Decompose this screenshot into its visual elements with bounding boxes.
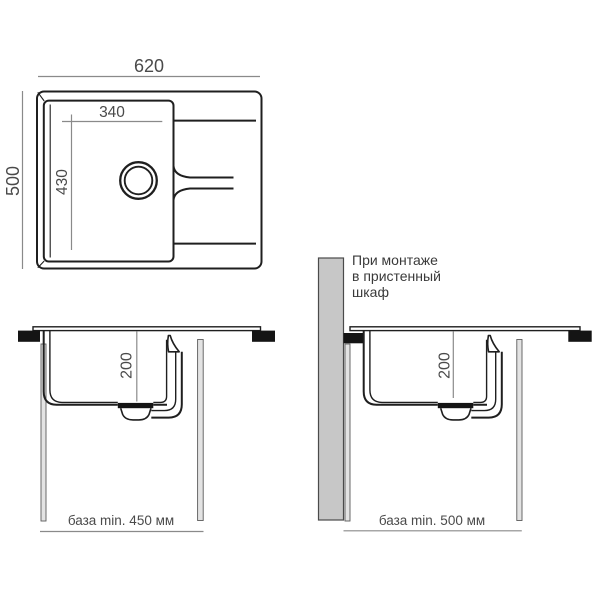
wall-panel: [319, 258, 344, 520]
cabinet-panel-left: [345, 344, 350, 521]
countertop: [33, 327, 261, 331]
top-view: [23, 77, 262, 270]
wall-cabinet-note: При монтаже в пристенный шкаф: [352, 253, 462, 300]
note-line-2: в пристенный: [352, 269, 462, 285]
front-view-standard: [18, 327, 275, 532]
mounting-clamp-left: [344, 333, 364, 343]
diagram-drawing: [0, 0, 600, 600]
note-line-1: При монтаже: [352, 253, 462, 269]
mounting-clamp-right: [252, 331, 275, 342]
mounting-clamp-left: [18, 331, 40, 342]
countertop: [350, 327, 580, 331]
mounting-clamp-right: [568, 331, 591, 342]
sink-installation-diagram: 620 500 340 430 200 200 база min. 450 мм…: [0, 0, 600, 600]
cabinet-panel-right: [517, 340, 522, 521]
cabinet-panel-right: [198, 340, 204, 521]
note-line-3: шкаф: [352, 285, 462, 301]
bowl-outline: [44, 101, 174, 262]
